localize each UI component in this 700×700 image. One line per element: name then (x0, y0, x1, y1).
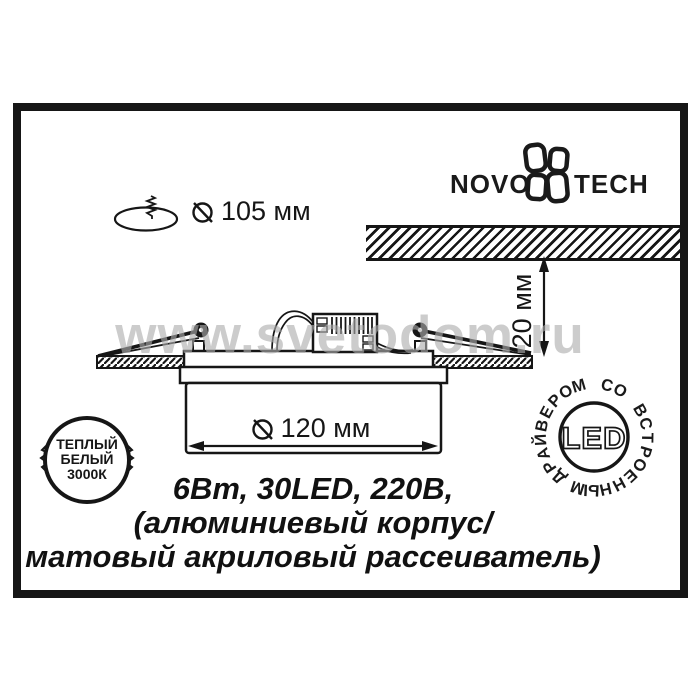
diameter-icon (190, 199, 215, 225)
spec-line-diffuser: матовый акриловый рассеиватель) (13, 540, 613, 574)
led-stamp-label: LED (562, 421, 627, 456)
clip-bracket-right (415, 341, 426, 351)
svg-text:Й: Й (531, 433, 551, 446)
mounting-hole-icon (106, 188, 186, 236)
clip-pivot-left (194, 323, 209, 338)
badge-line-3: 3000К (45, 467, 129, 482)
novotech-logo: NOVO TECH (448, 140, 678, 216)
body-diameter-value: 120 мм (281, 413, 371, 444)
clip-pivot-right (413, 323, 428, 338)
badge-line-1: ТЕПЛЫЙ (45, 437, 129, 452)
diameter-icon (250, 416, 275, 442)
badge-line-2: БЕЛЫЙ (45, 452, 129, 467)
spring-clip-right (419, 330, 531, 355)
specs-text: 6Вт, 30LED, 220В, (алюминиевый корпус/ м… (13, 472, 613, 574)
novotech-flower-icon (521, 140, 573, 216)
driver-box (313, 314, 377, 352)
clip-bracket-left (193, 341, 204, 351)
badge-text: ТЕПЛЫЙ БЕЛЫЙ 3000К (45, 437, 129, 482)
ceiling-section (366, 225, 680, 261)
logo-text-tech: TECH (574, 169, 649, 200)
svg-text:Т: Т (638, 433, 656, 443)
cutout-diameter-value: 105 мм (221, 196, 311, 227)
spec-line-housing: (алюминиевый корпус/ (13, 506, 613, 540)
logo-text-novo: NOVO (450, 169, 531, 200)
cutout-diameter-label: 105 мм (190, 196, 311, 227)
cutout-dimension-row: 105 мм (106, 188, 336, 238)
body-diameter-label: 120 мм (210, 413, 410, 444)
